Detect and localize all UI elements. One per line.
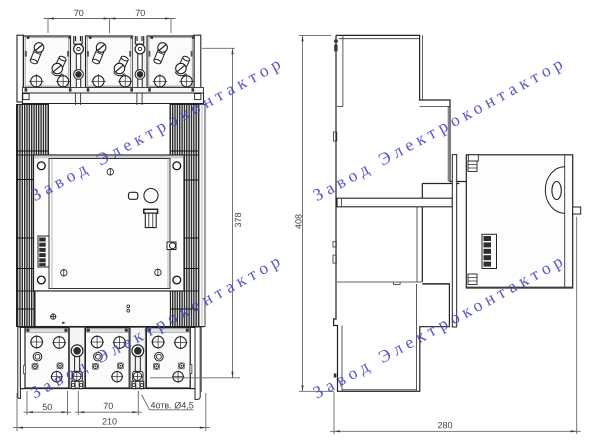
- svg-text:70: 70: [135, 8, 145, 18]
- svg-text:378: 378: [233, 212, 243, 227]
- svg-text:4отв. Ø4,5: 4отв. Ø4,5: [150, 400, 193, 410]
- svg-text:70: 70: [103, 401, 113, 411]
- svg-text:50: 50: [42, 402, 52, 412]
- svg-text:210: 210: [102, 416, 117, 426]
- svg-text:408: 408: [293, 214, 303, 229]
- svg-text:280: 280: [437, 420, 452, 430]
- svg-text:70: 70: [74, 8, 84, 18]
